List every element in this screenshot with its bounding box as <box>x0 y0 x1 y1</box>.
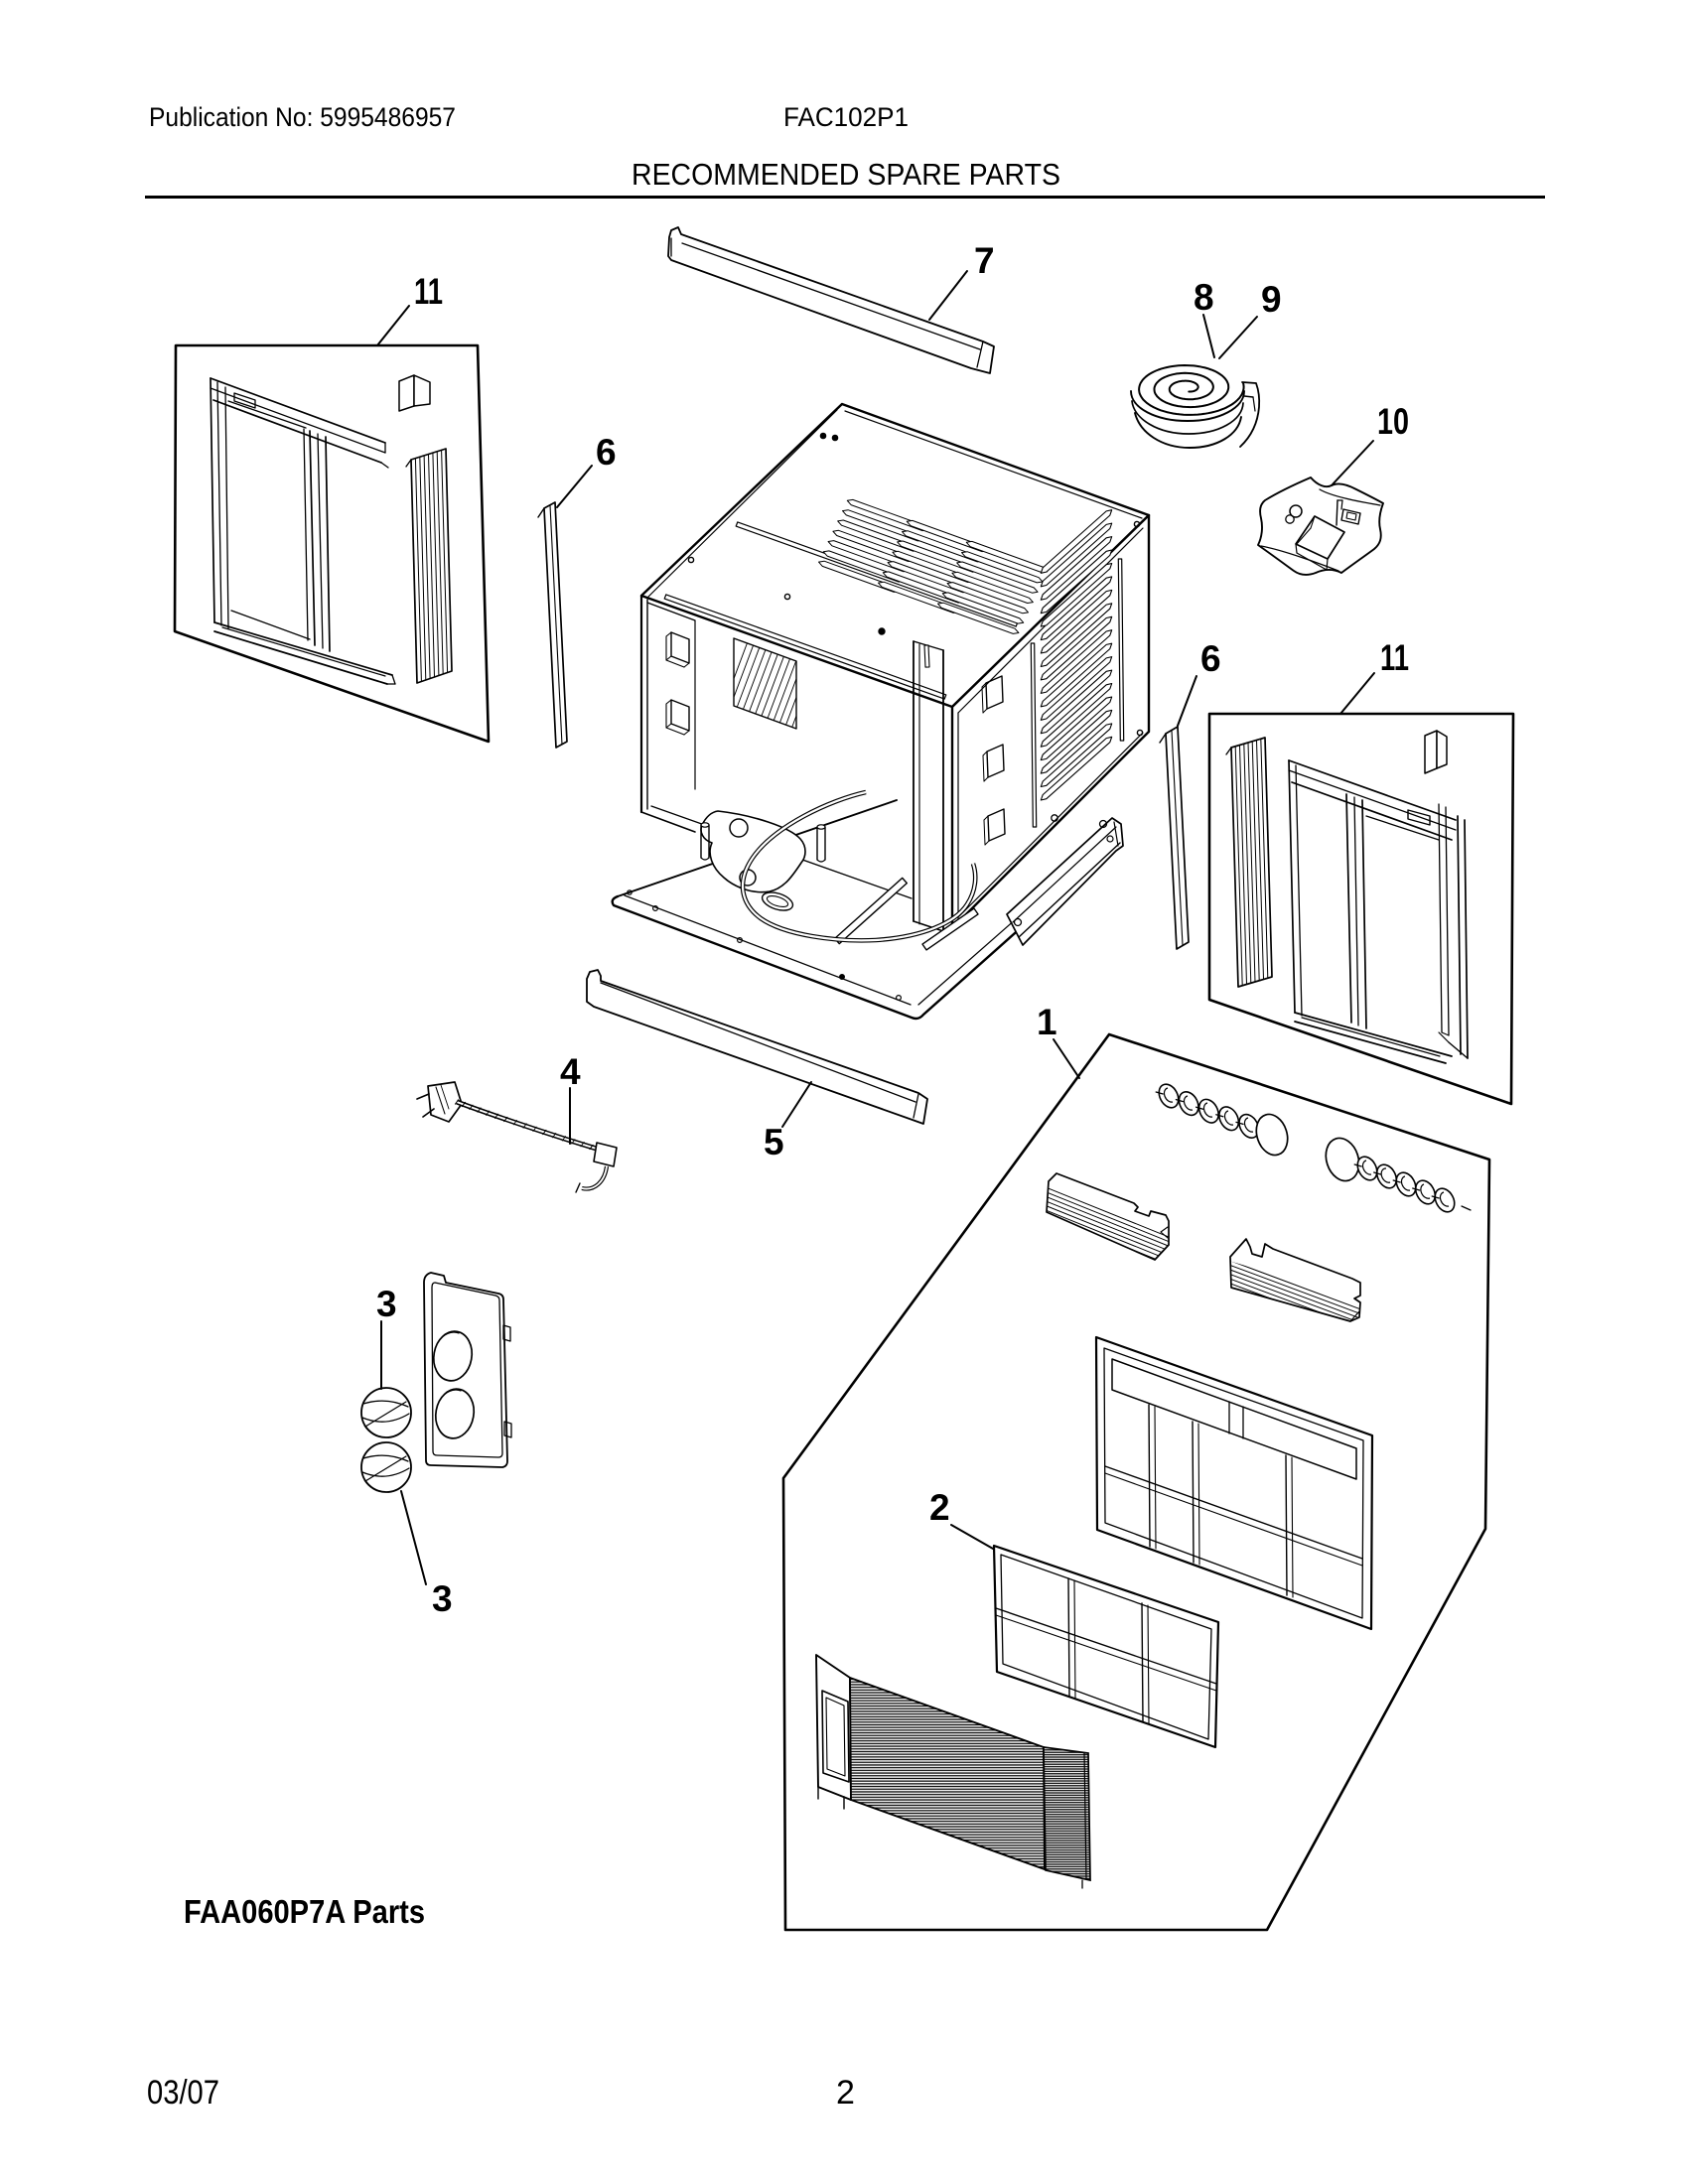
svg-text:2: 2 <box>929 1487 950 1528</box>
svg-text:11: 11 <box>1380 637 1409 678</box>
svg-text:6: 6 <box>596 432 617 473</box>
svg-text:2: 2 <box>836 2074 855 2112</box>
svg-text:RECOMMENDED SPARE PARTS: RECOMMENDED SPARE PARTS <box>632 157 1060 192</box>
svg-text:7: 7 <box>974 240 995 281</box>
svg-text:11: 11 <box>414 271 443 312</box>
svg-text:FAC102P1: FAC102P1 <box>783 102 909 132</box>
svg-text:6: 6 <box>1200 638 1221 679</box>
svg-text:Publication No: 5995486957: Publication No: 5995486957 <box>149 102 456 132</box>
svg-text:4: 4 <box>560 1051 581 1092</box>
svg-text:8: 8 <box>1194 277 1214 318</box>
svg-text:5: 5 <box>764 1122 784 1162</box>
svg-text:1: 1 <box>1037 1002 1057 1042</box>
svg-text:FAA060P7A Parts: FAA060P7A Parts <box>184 1893 425 1930</box>
svg-text:3: 3 <box>432 1578 453 1619</box>
svg-text:10: 10 <box>1377 401 1409 442</box>
svg-text:3: 3 <box>376 1284 397 1324</box>
svg-text:03/07: 03/07 <box>147 2074 219 2112</box>
svg-text:9: 9 <box>1261 279 1282 320</box>
